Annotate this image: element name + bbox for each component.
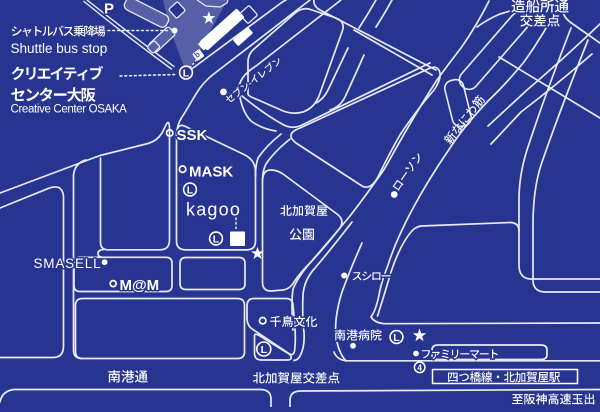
svg-text:MASK: MASK: [189, 164, 233, 181]
svg-text:P: P: [104, 1, 114, 18]
svg-text:L: L: [393, 332, 400, 344]
svg-text:SMASELL: SMASELL: [34, 256, 102, 271]
svg-text:SSK: SSK: [177, 127, 208, 144]
svg-text:L: L: [213, 233, 220, 245]
svg-text:Creative Center OSAKA: Creative Center OSAKA: [11, 104, 128, 116]
svg-text:M@M: M@M: [120, 277, 160, 294]
svg-text:L: L: [261, 344, 268, 356]
svg-text:Shuttle bus stop: Shuttle bus stop: [11, 41, 108, 56]
svg-text:kagoo: kagoo: [186, 200, 241, 220]
svg-text:4: 4: [417, 364, 422, 373]
svg-text:L: L: [183, 68, 190, 80]
svg-text:L: L: [187, 184, 194, 196]
